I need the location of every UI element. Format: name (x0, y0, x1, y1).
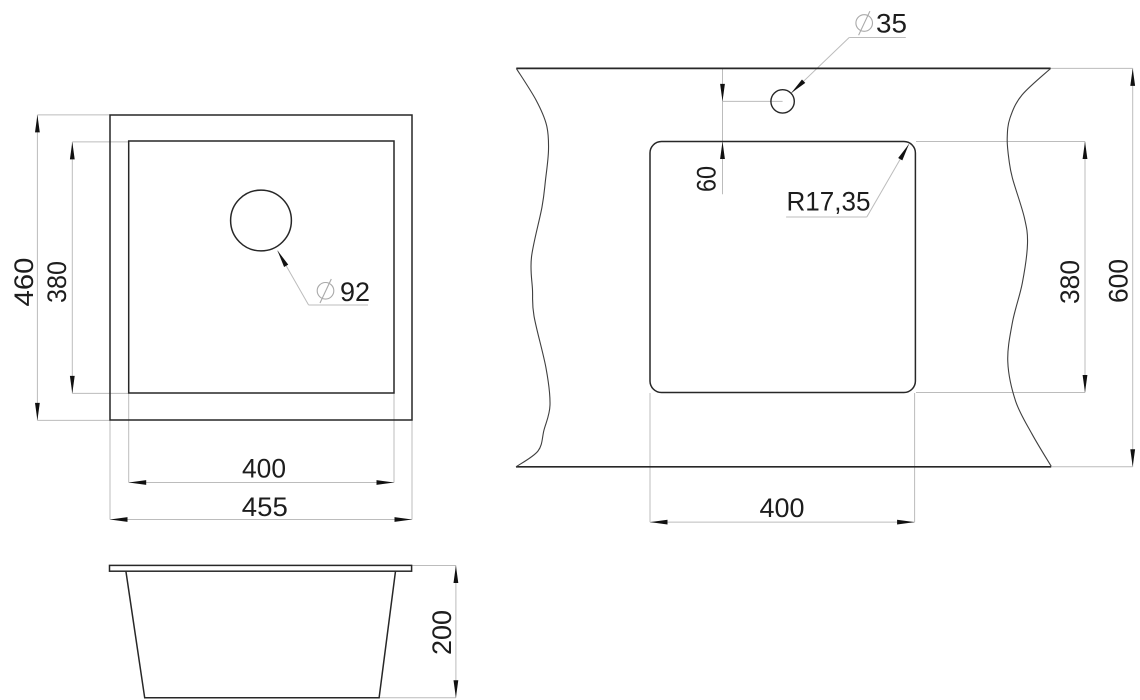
svg-text:380: 380 (1055, 260, 1085, 304)
svg-text:35: 35 (876, 9, 907, 39)
svg-text:60: 60 (692, 166, 722, 192)
svg-text:92: 92 (340, 277, 370, 307)
svg-text:400: 400 (242, 454, 286, 484)
svg-text:460: 460 (9, 258, 39, 307)
svg-text:R17,35: R17,35 (787, 187, 871, 217)
svg-text:200: 200 (427, 610, 457, 655)
svg-text:400: 400 (760, 493, 805, 523)
svg-text:380: 380 (42, 261, 72, 303)
svg-text:600: 600 (1103, 259, 1133, 303)
svg-text:455: 455 (242, 492, 288, 522)
